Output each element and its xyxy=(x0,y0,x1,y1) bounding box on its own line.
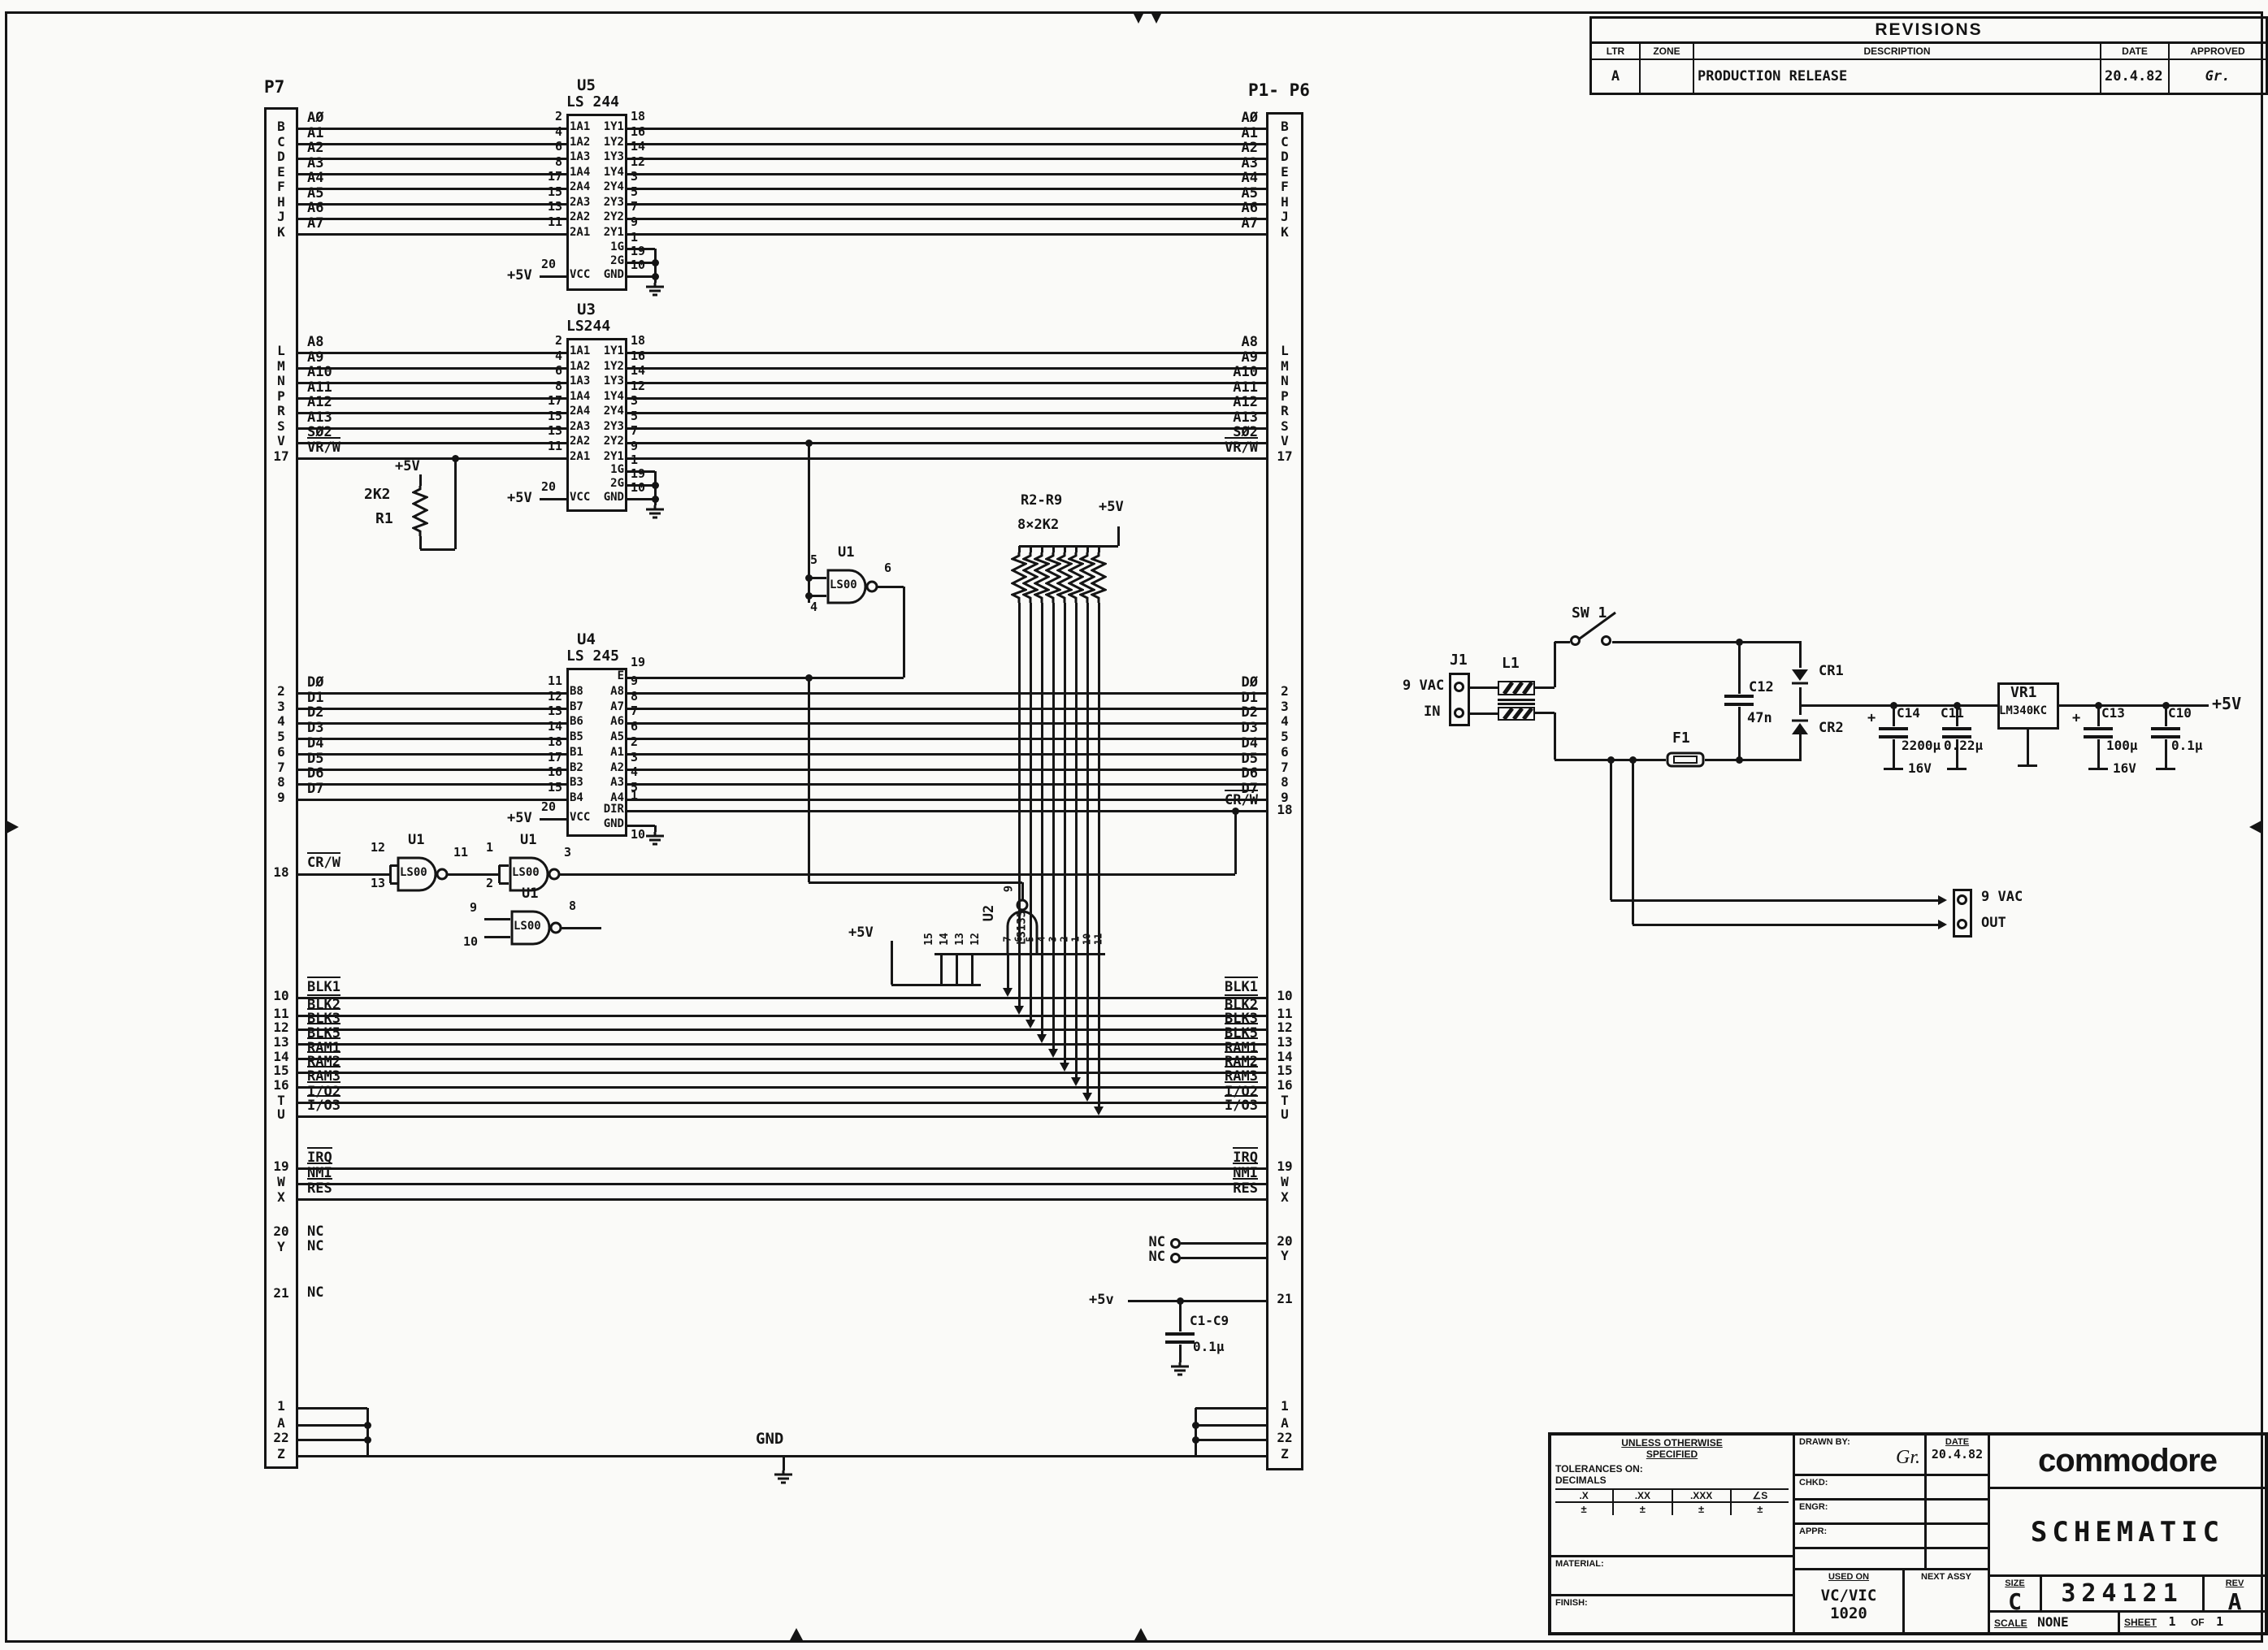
wire xyxy=(1554,642,1556,687)
gate-part: LS00 xyxy=(830,579,857,591)
pin-number: 7 xyxy=(631,201,638,214)
wire-gnd xyxy=(1195,1439,1266,1441)
ic-pin-label: 1Y3 xyxy=(587,375,624,388)
ground-symbol xyxy=(644,283,666,297)
connector-pin-left: 9 xyxy=(267,791,296,805)
wire-A12 xyxy=(627,412,1266,414)
connector-pin-right: C xyxy=(1268,136,1302,149)
connector-pin-left: C xyxy=(267,136,296,149)
wire-A6 xyxy=(627,218,1266,220)
wire-A13 xyxy=(297,427,566,430)
wire-nc xyxy=(1181,1257,1266,1259)
wire-D2 xyxy=(627,722,1266,725)
ic-pin-label: A8 xyxy=(587,686,624,698)
pin-number: 3 xyxy=(631,171,638,184)
fold-mark-right xyxy=(2249,821,2261,834)
ic-pin-label: GND xyxy=(587,269,624,281)
ground-symbol xyxy=(644,505,666,520)
pin-number: 12 xyxy=(970,933,982,946)
pin-number: 10 xyxy=(631,829,645,842)
connector-pin-left: L xyxy=(267,344,296,358)
wire xyxy=(2165,705,2167,726)
wire-D6 xyxy=(627,783,1266,786)
ic-pin-label: B5 xyxy=(570,731,583,743)
arrowhead-down xyxy=(1060,1063,1069,1072)
connector-pin-left: 22 xyxy=(267,1431,296,1445)
pin-number: 20 xyxy=(541,801,556,814)
wire-A8 xyxy=(297,352,566,354)
pin-number: 17 xyxy=(533,395,562,408)
connector-pin-left: W xyxy=(267,1176,296,1189)
pin-number: 15 xyxy=(924,933,935,946)
connector-pin-right: J xyxy=(1268,210,1302,224)
pin-number: 8 xyxy=(631,691,638,704)
ic-pin-label: 2Y1 xyxy=(587,227,624,239)
connector-pin-left: 18 xyxy=(267,866,296,880)
resistor-symbol xyxy=(1091,552,1107,603)
wire xyxy=(1738,642,1741,694)
switch-blade xyxy=(1576,609,1619,642)
pin-number: 1 xyxy=(631,454,638,467)
pin-number: 13 xyxy=(533,201,562,214)
signal-label-right: D6 xyxy=(1177,767,1258,782)
wire-gnd xyxy=(297,1407,367,1410)
wire-RAM2 xyxy=(297,1072,1266,1074)
wire-gnd xyxy=(297,1424,367,1427)
ground-symbol xyxy=(644,832,666,847)
pin-number: 17 xyxy=(533,751,562,764)
arrowhead-down xyxy=(1014,1006,1024,1015)
core-line xyxy=(1498,703,1535,705)
connector-pin-left: Z xyxy=(267,1448,296,1462)
wire xyxy=(1075,603,1078,954)
connector-pin-right: L xyxy=(1268,344,1302,358)
wire xyxy=(971,954,974,985)
wire-A1 xyxy=(627,143,1266,145)
wire-gnd xyxy=(783,1456,785,1470)
connector-pin-right: 16 xyxy=(1268,1079,1302,1093)
wire-gnd xyxy=(627,275,655,278)
connector-p7-label: P7 xyxy=(264,78,284,96)
wire xyxy=(498,865,501,883)
capacitor-c13-voltage: 16V xyxy=(2113,762,2136,776)
signal-label: A10 xyxy=(307,366,332,380)
connector-j1-label: J1 xyxy=(1450,653,1468,669)
ic-pin-label: B3 xyxy=(570,777,583,789)
connector-pin-left: E xyxy=(267,166,296,180)
signal-label-right: DØ xyxy=(1177,676,1258,691)
junction-dot xyxy=(652,259,659,266)
schematic-canvas: P7P1- P6U5LS 244BAØ21A11Y118AØBCA141A21Y… xyxy=(0,0,2268,1650)
connector-pin-right: 13 xyxy=(1268,1036,1302,1050)
pin-number: 19 xyxy=(631,468,645,481)
capacitor-c13-label: C13 xyxy=(2101,707,2125,721)
wire-D2 xyxy=(297,722,566,725)
wire-D4 xyxy=(297,753,566,756)
junction-dot xyxy=(452,455,459,462)
wire xyxy=(499,882,509,885)
connector-pin-right: R xyxy=(1268,405,1302,418)
terminal-bar xyxy=(2088,768,2108,770)
wire xyxy=(1075,546,1078,552)
signal-label: BLK1 xyxy=(307,981,340,995)
wire-gnd xyxy=(297,1439,367,1441)
connector-pin-right: 4 xyxy=(1268,715,1302,729)
out-net-label: OUT xyxy=(1981,916,2006,931)
ic-pin-label: A2 xyxy=(587,762,624,774)
ic-pin-label: E xyxy=(587,670,624,682)
wire xyxy=(877,586,904,588)
connector-pin-right: N xyxy=(1268,375,1302,388)
connector-j1 xyxy=(1449,673,1470,726)
pin-number: 8 xyxy=(533,380,562,393)
nc-label: NC xyxy=(307,1286,323,1301)
junction-dot xyxy=(805,440,813,447)
fuse-symbol xyxy=(1666,751,1705,769)
signal-label: AØ xyxy=(307,111,323,126)
wire xyxy=(2027,730,2029,765)
wire-DØ xyxy=(627,692,1266,695)
wire xyxy=(1064,603,1066,954)
fold-mark-bottom xyxy=(1134,1628,1147,1640)
pin-number: 3 xyxy=(631,395,638,408)
pin-number: 13 xyxy=(955,933,966,946)
diode-cr2 xyxy=(1789,715,1810,736)
connector-p1-p6-label: P1- P6 xyxy=(1248,81,1310,99)
wire-A7 xyxy=(297,233,566,236)
signal-label-right: A4 xyxy=(1177,171,1258,186)
connector-pin-left: K xyxy=(267,226,296,240)
pin-number: 11 xyxy=(533,440,562,453)
signal-label-right: D2 xyxy=(1177,706,1258,721)
diode-cr2-label: CR2 xyxy=(1819,721,1844,736)
wire-gnd xyxy=(654,825,657,832)
wire xyxy=(1018,546,1021,552)
ic-ref: U2 xyxy=(982,905,997,921)
connector-pin-left: 19 xyxy=(267,1160,296,1174)
junction-dot xyxy=(1192,1436,1199,1444)
ic-pin-label: VCC xyxy=(570,492,590,504)
ic-pin-label: 1Y2 xyxy=(587,361,624,373)
wire-A5 xyxy=(627,203,1266,206)
wire xyxy=(1179,1301,1182,1332)
pin-number: 1 xyxy=(631,790,638,803)
ic-pin-label: A7 xyxy=(587,701,624,713)
pin-number: 4 xyxy=(810,601,817,614)
arrowhead-down xyxy=(1094,1106,1104,1115)
wire-A3 xyxy=(627,173,1266,175)
gnd-label: GND xyxy=(756,1431,783,1448)
wire-gnd xyxy=(1195,1407,1266,1410)
connector-pin-right: A xyxy=(1268,1417,1302,1431)
wire-A11 xyxy=(297,397,566,400)
wire xyxy=(1535,712,1555,714)
pin-number: 20 xyxy=(541,481,556,494)
resistor-value: 2K2 xyxy=(364,487,391,503)
nc-stub-circle xyxy=(1170,1253,1181,1263)
connector-pin-left: 3 xyxy=(267,700,296,714)
ic-ref: U3 xyxy=(577,302,596,318)
wire-I/O3 xyxy=(297,1115,1266,1118)
ic-pin-label: 1G xyxy=(587,241,624,253)
ic-part: LS 244 xyxy=(566,95,619,110)
wire-NMI xyxy=(297,1183,1266,1185)
wire xyxy=(808,678,810,882)
resistor-ref: R2-R9 xyxy=(1021,494,1062,509)
arrowhead-down xyxy=(1048,1049,1058,1058)
fold-mark-bottom xyxy=(790,1628,803,1640)
nc-label: NC xyxy=(307,1240,323,1254)
connector-pin-right: M xyxy=(1268,360,1302,374)
ic-pin-label: 2Y2 xyxy=(587,211,624,223)
pin-number: 8 xyxy=(569,900,576,913)
wire-D5 xyxy=(297,769,566,771)
wire xyxy=(2097,739,2100,769)
ic-pin-label: 2Y1 xyxy=(587,451,624,463)
pin-number: 8 xyxy=(533,156,562,169)
wire xyxy=(1064,546,1066,552)
wire-IRQ xyxy=(297,1167,1266,1170)
wire-A4 xyxy=(297,188,566,190)
sheet-border xyxy=(5,11,2263,1643)
connector-pin-right: H xyxy=(1268,196,1302,210)
capacitor-c12-value: 47n xyxy=(1747,712,1772,726)
wire-A9 xyxy=(297,367,566,370)
nc-stub-circle xyxy=(1170,1238,1181,1249)
net-plus5v: +5V xyxy=(2212,695,2241,712)
signal-label-right: AØ xyxy=(1177,111,1258,126)
signal-label: A6 xyxy=(307,201,323,216)
ic-pin-label: 1Y1 xyxy=(587,121,624,133)
ic-pin-label: VCC xyxy=(570,812,590,824)
connector-pin-right: F xyxy=(1268,180,1302,194)
wire xyxy=(1470,712,1498,715)
wire-A7 xyxy=(627,233,1266,236)
arrowhead-right xyxy=(1938,895,1947,905)
wire xyxy=(1738,707,1741,760)
pin-number: 1 xyxy=(486,842,493,855)
pin-number: 18 xyxy=(533,736,562,749)
j1-pin xyxy=(1454,682,1464,692)
pin-number: 10 xyxy=(631,259,645,272)
signal-label: D2 xyxy=(307,706,323,721)
signal-label-right: I/O3 xyxy=(1177,1099,1258,1114)
inductor-coil xyxy=(1498,681,1535,695)
ic-pin-label: A5 xyxy=(587,731,624,743)
connector-pin-right: 18 xyxy=(1268,803,1302,817)
signal-label-right: A2 xyxy=(1177,141,1258,156)
connector-pin-right: Z xyxy=(1268,1448,1302,1462)
wire-A6 xyxy=(297,218,566,220)
signal-label-right: D4 xyxy=(1177,737,1258,751)
resistor-ref: R1 xyxy=(375,512,393,527)
arrowhead-down xyxy=(1082,1093,1092,1102)
wire-VR/W xyxy=(297,457,566,460)
ic-pin-label: A1 xyxy=(587,747,624,759)
pin-number: 6 xyxy=(533,141,562,154)
gate-part: LS00 xyxy=(400,867,427,879)
signal-label: A7 xyxy=(307,217,323,232)
pin-number: 4 xyxy=(533,350,562,363)
wire-A1 xyxy=(297,143,566,145)
wire-vcc xyxy=(540,818,566,821)
connector-pin-right: 20 xyxy=(1268,1235,1302,1249)
connector-pin-left: 16 xyxy=(267,1079,296,1093)
connector-pin-left: R xyxy=(267,405,296,418)
wire xyxy=(419,536,422,549)
wire-DØ xyxy=(297,692,566,695)
wire-D5 xyxy=(627,769,1266,771)
ic-pin-label: 1Y4 xyxy=(587,167,624,179)
connector-pin-left: V xyxy=(267,435,296,448)
capacitor-c14-value: 2200µ xyxy=(1902,739,1941,753)
capacitor-c12 xyxy=(1723,694,1755,707)
wire xyxy=(1799,642,1802,668)
wire-BLK2 xyxy=(297,1015,1266,1017)
pin-number: 5 xyxy=(810,554,817,567)
connector-pin-right: 21 xyxy=(1268,1293,1302,1306)
wire xyxy=(1041,546,1043,552)
wire xyxy=(419,474,422,486)
wire xyxy=(1633,924,1938,926)
capacitor-c10-value: 0.1µ xyxy=(2171,739,2203,753)
wire xyxy=(1632,760,1634,925)
capacitor-c14-voltage: 16V xyxy=(1908,762,1932,776)
ic-pin-label: 2Y2 xyxy=(587,435,624,448)
connector-pin-left: P xyxy=(267,390,296,404)
pin-number: 9 xyxy=(631,216,638,229)
gate-part: LS00 xyxy=(512,867,540,879)
junction-dot xyxy=(1232,808,1239,815)
signal-label: A12 xyxy=(307,396,332,410)
connector-pin-left: 4 xyxy=(267,715,296,729)
connector-pin-left: D xyxy=(267,150,296,164)
pin-number: 19 xyxy=(631,245,645,258)
fuse-f1-label: F1 xyxy=(1672,731,1690,747)
connector-pin-right: D xyxy=(1268,150,1302,164)
wire-crw xyxy=(627,810,1266,812)
connector-pin-right: P xyxy=(1268,390,1302,404)
terminal-bar xyxy=(2156,768,2175,770)
junction-dot xyxy=(364,1422,371,1429)
ic-pin-label: 1G xyxy=(587,464,624,476)
wire-crw xyxy=(559,873,1235,876)
pin-number: 3 xyxy=(631,751,638,764)
wire-A11 xyxy=(627,397,1266,400)
net-plus5v: +5V xyxy=(507,492,532,506)
out-net-label: 9 VAC xyxy=(1981,890,2023,905)
ic-pin-label: 1Y4 xyxy=(587,391,624,403)
wire-gnd xyxy=(366,1408,369,1456)
wire-A10 xyxy=(297,382,566,384)
wire xyxy=(420,548,455,551)
pin-number: 11 xyxy=(533,675,562,688)
connector-pin-left: 21 xyxy=(267,1287,296,1301)
wire-BLK3 xyxy=(297,1029,1266,1031)
wire xyxy=(1799,687,1802,715)
pin-number: 14 xyxy=(533,721,562,734)
ic-pin-label: B8 xyxy=(570,686,583,698)
wire-vcc xyxy=(540,275,566,278)
connector-pin-left: X xyxy=(267,1191,296,1205)
pin-number: 13 xyxy=(533,705,562,718)
connector-pin-left: U xyxy=(267,1108,296,1122)
ic-pin-label: B7 xyxy=(570,701,583,713)
wire-select xyxy=(1018,954,1021,1008)
wire-D6 xyxy=(297,783,566,786)
pin-number: 4 xyxy=(533,126,562,139)
ic-part: LS244 xyxy=(566,319,610,335)
pin-number: 20 xyxy=(541,258,556,271)
wire-vcc xyxy=(540,498,566,500)
wire-RES xyxy=(297,1198,1266,1201)
pin-number: 18 xyxy=(631,110,645,123)
diode-cr1 xyxy=(1789,668,1810,689)
ic-ref: U4 xyxy=(577,632,596,648)
signal-label-right: VR/W xyxy=(1177,441,1258,456)
connector-pin-right: X xyxy=(1268,1191,1302,1205)
wire xyxy=(1018,603,1021,954)
signal-label-right: D3 xyxy=(1177,721,1258,736)
connector-pin-left: A xyxy=(267,1417,296,1431)
nc-label: NC xyxy=(1131,1250,1165,1265)
connector-pin-right: 22 xyxy=(1268,1431,1302,1445)
signal-label: D3 xyxy=(307,721,323,736)
wire xyxy=(891,941,893,985)
connector-pin-left: 17 xyxy=(267,450,296,464)
wire xyxy=(1098,546,1100,552)
wire-AØ xyxy=(627,128,1266,130)
connector-pin-left: 13 xyxy=(267,1036,296,1050)
pin-number: 19 xyxy=(631,656,645,669)
connector-pin-right: 7 xyxy=(1268,761,1302,775)
connector-pin-right: 2 xyxy=(1268,685,1302,699)
wire xyxy=(499,864,509,867)
connector-pin-right: 5 xyxy=(1268,730,1302,744)
connector-pin-right: W xyxy=(1268,1176,1302,1189)
wire xyxy=(956,954,958,985)
pin-number: 2 xyxy=(533,110,562,123)
polarity-plus: + xyxy=(2072,712,2080,726)
net-plus5v: +5V xyxy=(848,926,874,941)
ic-pin-label: 2Y3 xyxy=(587,197,624,209)
net-plus5v: +5v xyxy=(1089,1293,1114,1308)
wire xyxy=(1611,899,1938,902)
signal-label-right: A12 xyxy=(1177,396,1258,410)
arrowhead-down xyxy=(1026,1020,1035,1029)
connector-pin-left: 8 xyxy=(267,776,296,790)
pin-number: 16 xyxy=(631,350,645,363)
signal-label-right: A8 xyxy=(1177,336,1258,350)
connector-pin-right: 8 xyxy=(1268,776,1302,790)
capacitor-c12-label: C12 xyxy=(1749,681,1774,695)
pin-number: 15 xyxy=(533,186,562,199)
signal-label: RES xyxy=(307,1182,332,1197)
wire-plus5v xyxy=(1128,1300,1266,1302)
connector-pin-left: J xyxy=(267,210,296,224)
core-line xyxy=(1498,699,1535,701)
ic-pin-label: A3 xyxy=(587,777,624,789)
wire-BLK5 xyxy=(297,1043,1266,1046)
gate-ref: U1 xyxy=(522,887,538,902)
signal-label: D7 xyxy=(307,782,323,797)
pin-number: 2 xyxy=(486,877,493,890)
signal-label-right: CR/W xyxy=(1177,794,1258,808)
pin-number: 9 xyxy=(631,440,638,453)
wire-gnd xyxy=(297,1455,1266,1457)
connector-pin-right: 1 xyxy=(1268,1400,1302,1414)
signal-label: D4 xyxy=(307,737,323,751)
